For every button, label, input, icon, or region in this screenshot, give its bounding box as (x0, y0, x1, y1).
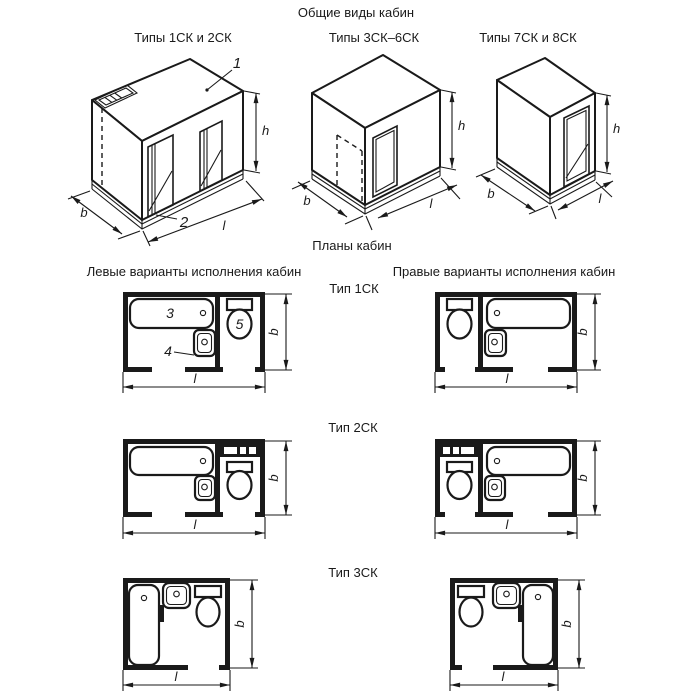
row-label-3sk: Тип 3СК (328, 566, 377, 580)
bathtub-shape (487, 447, 570, 475)
iso-view-1sk-2sk-drawing: 1 2 h b l (60, 50, 305, 250)
dim-b-label: b (266, 328, 281, 335)
toilet-shape (227, 462, 252, 499)
dimension-b: b (558, 580, 585, 668)
dim-l-label: l (194, 371, 198, 386)
dim-b-label: b (80, 205, 87, 220)
washbasin-shape (163, 583, 190, 608)
plan-3sk-left-drawing: b l (115, 572, 270, 697)
caption-iso-3sk-6sk: Типы 3СК–6СК (329, 31, 419, 45)
dim-l-label: l (175, 669, 179, 684)
dim-b-label: b (575, 328, 590, 335)
dimension-l: l (435, 371, 577, 393)
vent-duct-block (220, 444, 260, 457)
plan-1sk-right-drawing: b l (427, 285, 617, 397)
toilet-shape (447, 462, 472, 499)
caption-iso-7sk-8sk: Типы 7СК и 8СК (479, 31, 577, 45)
bathtub-shape (130, 447, 213, 475)
toilet-shape: 5 (227, 299, 252, 339)
dim-l-label: l (430, 196, 434, 211)
dim-l-label: l (194, 517, 198, 532)
dim-h-label: h (613, 121, 620, 136)
dim-l-label: l (506, 517, 510, 532)
dimension-b: b (265, 441, 292, 515)
vent-duct-block (440, 444, 478, 457)
bathtub-shape (129, 585, 159, 665)
dimension-b: b (575, 294, 601, 370)
washbasin-shape (195, 476, 215, 500)
dimension-h: h (244, 91, 269, 173)
plan-1sk-left-drawing: 3 4 5 b l (115, 285, 305, 397)
dim-b-label: b (303, 193, 310, 208)
callout-bathtub-label: 3 (166, 305, 174, 321)
dim-l-label: l (502, 669, 506, 684)
left-column-header: Левые варианты исполнения кабин (87, 265, 302, 279)
dim-b-label: b (575, 474, 590, 481)
dimension-b: b (575, 441, 601, 515)
right-column-header: Правые варианты исполнения кабин (393, 265, 616, 279)
caption-iso-1sk-2sk: Типы 1СК и 2СК (134, 31, 232, 45)
washbasin-shape: 4 (164, 330, 215, 359)
bathtub-shape (523, 585, 553, 665)
plan-2sk-right-drawing: b l (427, 432, 617, 544)
dimension-l: l (435, 517, 577, 539)
row-label-1sk: Тип 1СК (329, 282, 378, 296)
dim-b-label: b (559, 620, 574, 627)
dimension-b: b (265, 294, 292, 370)
toilet-shape (447, 299, 472, 339)
bathtub-shape: 3 (130, 299, 213, 328)
iso-view-7sk-8sk-drawing: h b l (460, 50, 655, 250)
row-label-2sk: Тип 2СК (328, 421, 377, 435)
plan-3sk-right-drawing: b l (437, 572, 592, 697)
washbasin-shape (485, 330, 506, 356)
callout-1-label: 1 (233, 55, 241, 72)
dimension-l: l (123, 669, 230, 691)
cabin-box (92, 59, 243, 220)
dim-h-label: h (262, 123, 269, 138)
dim-b-label: b (266, 474, 281, 481)
toilet-shape (458, 586, 484, 627)
toilet-shape (195, 586, 221, 627)
bathtub-shape (487, 299, 570, 328)
callout-washbasin-label: 4 (164, 343, 172, 359)
plan-2sk-left-drawing: b l (115, 432, 305, 544)
dim-b-label: b (232, 620, 247, 627)
drawing-page: Общие виды кабин Типы 1СК и 2СК Типы 3СК… (0, 0, 700, 700)
dimension-h: h (596, 93, 620, 174)
dimension-b: b (230, 580, 258, 668)
dim-b-label: b (487, 186, 494, 201)
dim-l-label: l (599, 191, 603, 206)
dimension-l: l (123, 517, 265, 539)
callout-toilet-label: 5 (236, 316, 244, 332)
page-title: Общие виды кабин (298, 6, 414, 20)
washbasin-shape (493, 583, 520, 608)
dim-l-label: l (223, 218, 227, 233)
iso-view-3sk-6sk-drawing: h b l (290, 50, 475, 250)
dim-l-label: l (506, 371, 510, 386)
dimension-l: l (123, 371, 265, 393)
washbasin-shape (485, 476, 505, 500)
dimension-l: l (450, 669, 558, 691)
